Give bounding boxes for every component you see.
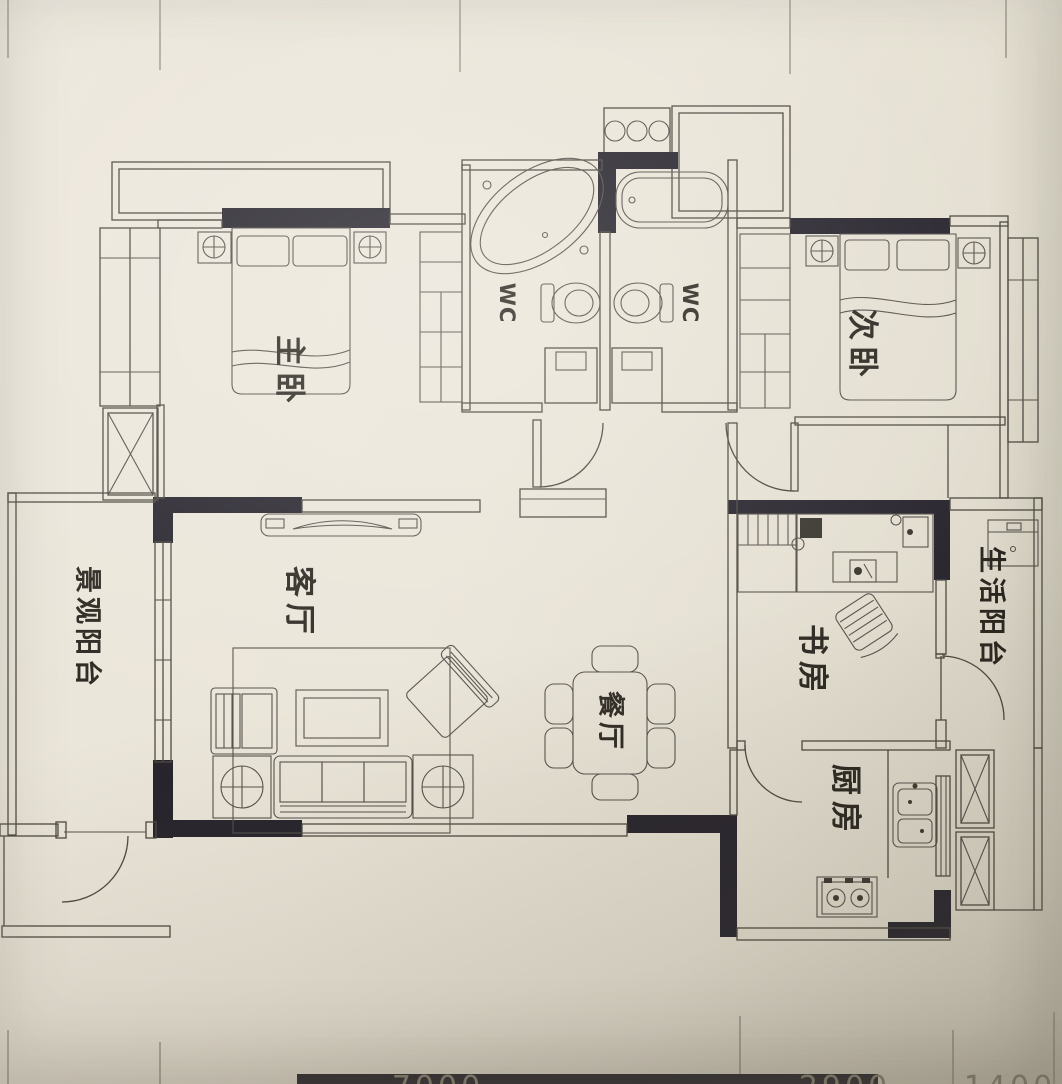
shaft-x-box	[956, 750, 994, 828]
dimension-label: 7000	[392, 1070, 484, 1084]
coffee-table-icon	[296, 690, 388, 746]
bookshelf-icon	[738, 514, 796, 592]
nightstand-icon	[354, 232, 386, 263]
armchair-icon	[211, 688, 277, 754]
dimension-line-bar	[297, 1074, 878, 1084]
window	[100, 228, 160, 406]
floor-plan-drawing: 7000 2900 1400	[0, 0, 1062, 1084]
sofa-icon	[274, 756, 412, 818]
wall	[936, 720, 946, 748]
label-study: 书房	[794, 624, 830, 698]
wall	[795, 417, 1005, 425]
label-view-balcony: 景观阳台	[72, 566, 104, 690]
label-living-room: 客厅	[281, 566, 317, 640]
side-table-icon	[413, 755, 473, 818]
side-table-icon	[213, 756, 271, 818]
nightstand-icon	[958, 238, 990, 268]
wall	[936, 580, 946, 654]
shaft-x-box	[956, 832, 994, 910]
floor-plan-photo: 7000 2900 1400	[0, 0, 1062, 1084]
room-view-balcony: 景观阳台	[0, 493, 170, 937]
door-leaf	[791, 423, 798, 491]
label-wc-left: WC	[495, 283, 519, 324]
room-utility-balcony: 生活阳台	[936, 498, 1042, 748]
toilet-icon	[541, 283, 600, 323]
wall	[728, 423, 737, 748]
room-dining: 餐厅	[545, 646, 675, 800]
label-second-bedroom: 次卧	[844, 309, 880, 383]
duct-bay-top-center	[672, 106, 790, 218]
room-second-bedroom: 次卧	[737, 216, 1038, 498]
wardrobe-icon	[420, 232, 462, 402]
kitchen-sink-icon	[893, 783, 937, 847]
office-chair-icon	[834, 592, 900, 661]
washbasin-bay	[604, 108, 670, 154]
door-threshold	[612, 348, 662, 403]
door-threshold	[545, 348, 597, 403]
nightstand-icon	[806, 236, 838, 266]
basin-icon	[627, 121, 647, 141]
dimension-label: 2900	[799, 1070, 891, 1084]
balcony-window	[155, 542, 171, 762]
rug	[233, 648, 450, 833]
pipe-duct	[936, 776, 950, 876]
room-study: 书房	[738, 514, 933, 698]
door-leaf	[533, 420, 541, 487]
door-arc	[539, 423, 603, 487]
service-shafts	[936, 748, 1042, 910]
tv-cabinet-icon	[261, 514, 421, 536]
chair-icon	[592, 774, 638, 800]
nightstand-icon	[198, 232, 231, 263]
room-wc-right: WC	[612, 160, 737, 412]
label-dining-room: 餐厅	[595, 691, 626, 753]
room-living: 客厅	[155, 500, 627, 836]
wall	[730, 750, 737, 815]
shaft-x-box	[103, 408, 158, 500]
label-master-bedroom: 主卧	[271, 335, 307, 409]
chair-icon	[545, 684, 573, 724]
chair-icon	[647, 684, 675, 724]
label-utility-balcony: 生活阳台	[976, 546, 1008, 670]
door-arc	[62, 836, 128, 902]
chair-icon	[592, 646, 638, 672]
basin-icon	[605, 121, 625, 141]
wall	[1000, 222, 1008, 498]
wall	[462, 165, 470, 410]
mouse-pad-icon	[850, 560, 876, 582]
toilet-icon	[614, 283, 673, 323]
room-kitchen: 厨房	[730, 741, 950, 940]
wall	[302, 824, 627, 836]
dimension-strip: 7000 2900 1400	[297, 1070, 1056, 1084]
monitor-icon	[903, 517, 928, 547]
basin-icon	[649, 121, 669, 141]
chair-icon	[647, 728, 675, 768]
stove-icon	[817, 877, 877, 917]
desk-icon	[792, 514, 933, 592]
door-arc	[745, 745, 802, 802]
label-wc-right: WC	[678, 283, 702, 324]
telephone-icon	[800, 518, 822, 538]
chair-icon	[545, 728, 573, 768]
door-arc	[726, 423, 794, 491]
window	[1008, 238, 1038, 442]
console-cabinet-icon	[520, 489, 606, 517]
label-kitchen: 厨房	[827, 764, 863, 838]
dimension-label: 1400	[964, 1070, 1056, 1084]
wardrobe-icon	[740, 234, 790, 408]
